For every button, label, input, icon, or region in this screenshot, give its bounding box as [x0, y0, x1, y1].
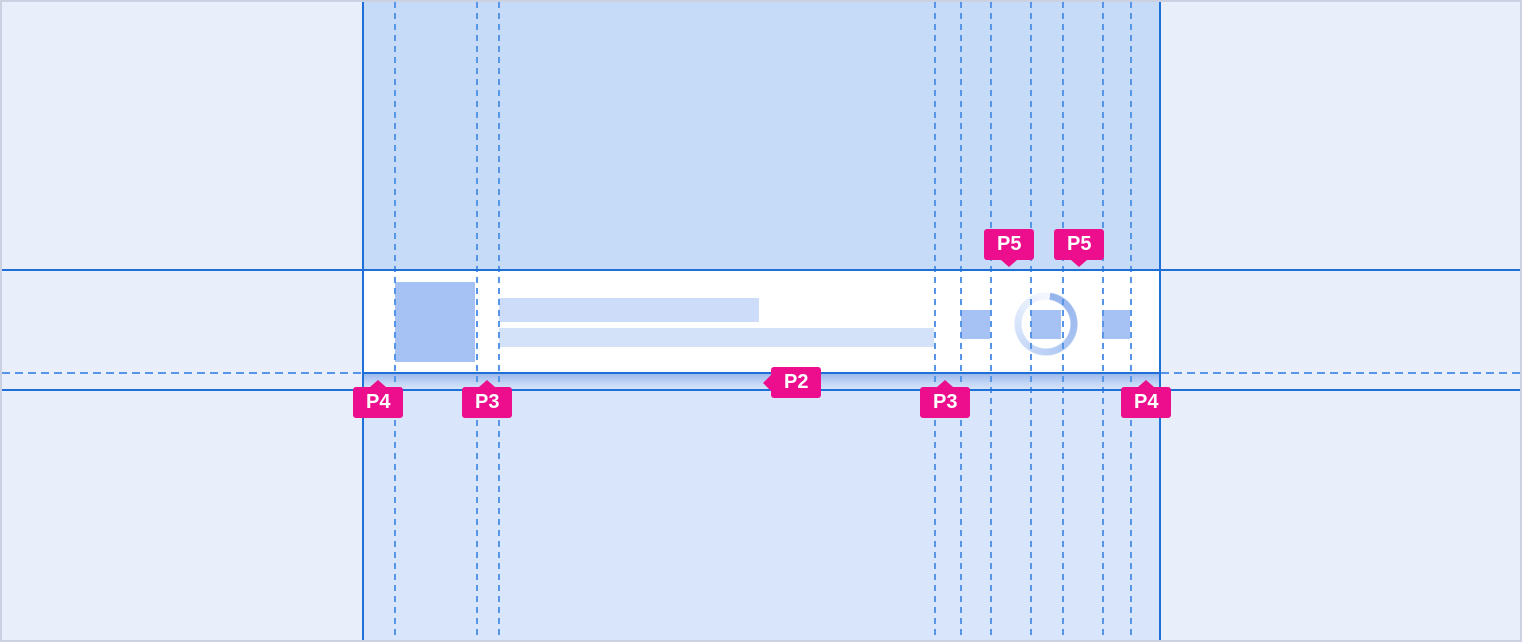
spacing-badge-p4-right: P4: [1121, 387, 1171, 418]
spacing-badge-p3-left: P3: [462, 387, 512, 418]
row-top-boundary-line: [2, 269, 1522, 271]
vertical-guide-line: [1130, 2, 1132, 642]
vertical-guide-line: [1102, 2, 1104, 642]
spacing-badge-p4-left: P4: [353, 387, 403, 418]
spec-canvas: P5 P5 P2 P4 P3 P3 P4: [0, 0, 1522, 642]
vertical-guide-line: [960, 2, 962, 642]
spacing-badge-p5-left: P5: [984, 229, 1034, 260]
horizontal-guide-line: [2, 372, 363, 374]
vertical-guide-line: [934, 2, 936, 642]
spacing-badge-p3-right: P3: [920, 387, 970, 418]
vertical-guide-line: [1030, 2, 1032, 642]
action-icon-placeholder: [961, 310, 990, 339]
column-right-boundary-line: [1159, 2, 1161, 642]
subtitle-line-placeholder: [499, 328, 934, 347]
avatar-placeholder: [395, 282, 475, 362]
vertical-guide-line: [476, 2, 478, 642]
action-icon-placeholder: [1102, 310, 1130, 339]
title-line-placeholder: [499, 298, 759, 322]
row-bottom-boundary-line: [363, 372, 1161, 374]
horizontal-guide-line: [1161, 372, 1522, 374]
next-row-boundary-line: [2, 389, 1522, 391]
action-icon-placeholder: [1031, 310, 1061, 339]
spacing-badge-p2: P2: [771, 367, 821, 398]
column-left-boundary-line: [362, 2, 364, 642]
vertical-guide-line: [394, 2, 396, 642]
list-item-row: [363, 271, 1161, 372]
vertical-guide-line: [1062, 2, 1064, 642]
vertical-guide-line: [990, 2, 992, 642]
vertical-guide-line: [498, 2, 500, 642]
spacing-badge-p5-right: P5: [1054, 229, 1104, 260]
